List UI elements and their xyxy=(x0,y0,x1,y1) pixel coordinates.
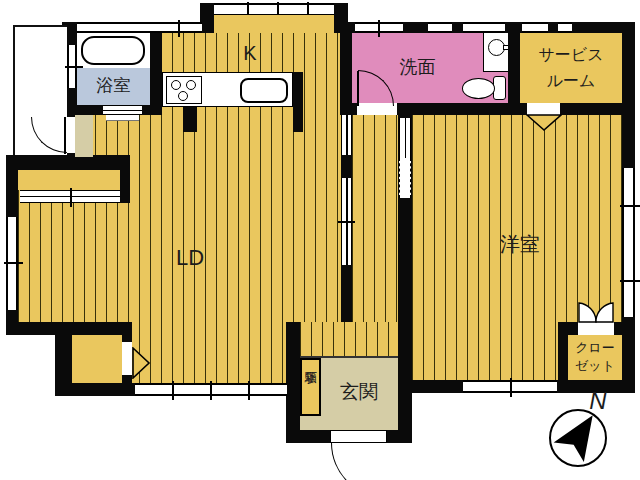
ld-bottom-window xyxy=(135,383,287,396)
washroom-window-2 xyxy=(428,22,452,33)
window-tick xyxy=(4,262,23,264)
wall-counter-stub xyxy=(183,107,197,132)
western-room-door xyxy=(399,118,411,158)
closet-folding-door xyxy=(578,299,614,323)
stove-burner xyxy=(178,91,188,101)
window-tick xyxy=(172,381,174,400)
wall-bumpout-post-left xyxy=(200,3,214,33)
kitchen-label: K xyxy=(230,42,270,64)
bathroom-side-window xyxy=(67,45,77,88)
window-tick xyxy=(70,188,72,207)
entrance-hall-floor xyxy=(300,322,398,358)
washroom-door-leaf xyxy=(357,71,359,106)
door-leaf-line xyxy=(405,118,407,158)
storage-door-opening xyxy=(122,342,132,375)
service-room-window-1 xyxy=(522,22,548,33)
wall-washroom-service xyxy=(508,22,520,115)
wall-entrance-left xyxy=(286,322,300,443)
window-tick xyxy=(248,381,250,400)
western-room-bottom-window xyxy=(463,380,557,393)
utility-door-leaf xyxy=(64,117,66,154)
toilet-window xyxy=(463,22,505,33)
closet-label-line1: クロー xyxy=(568,341,622,355)
wall-kitchen-washroom xyxy=(340,22,352,115)
living-dining-label: LD xyxy=(150,246,230,270)
wall-kitchen-right xyxy=(293,72,303,132)
western-room-label: 洋室 xyxy=(480,233,560,255)
ld-left-window xyxy=(6,217,18,310)
floor-plan: 下駄箱 浴室 K 洗面 サービス ルーム LD 洋室 クロー ゼット 玄関 xyxy=(0,0,640,480)
exterior-notch xyxy=(0,335,55,480)
stove xyxy=(166,76,202,104)
western-room-door-pocket xyxy=(399,158,411,198)
ld-sliding-door-upper xyxy=(341,115,352,155)
closet-door-opening xyxy=(578,322,614,335)
shoe-cabinet: 下駄箱 xyxy=(300,358,321,416)
bathroom-hall-strip xyxy=(75,115,93,157)
stove-burner xyxy=(186,80,196,90)
door-leaf-line xyxy=(346,115,348,155)
service-room-label-line2: ルーム xyxy=(520,72,622,90)
window-tick xyxy=(178,20,180,37)
wall-storage-left xyxy=(55,322,72,396)
bathroom-door-track xyxy=(106,115,139,121)
service-room-floor xyxy=(520,33,622,103)
closet-label-line2: ゼット xyxy=(568,359,622,373)
bathtub xyxy=(81,36,145,65)
service-room-window-2 xyxy=(558,22,572,33)
washroom-window-1 xyxy=(355,22,403,33)
stove-burner xyxy=(171,80,181,90)
kitchen-window-sill xyxy=(214,15,334,33)
wall-bathroom-right xyxy=(150,25,162,115)
bathroom-sliding-door xyxy=(103,105,142,115)
toilet-bowl xyxy=(462,78,495,99)
compass-north-label: N xyxy=(585,388,611,414)
washroom-label: 洗面 xyxy=(380,58,455,78)
bathroom-top-window xyxy=(77,22,148,33)
bathroom-label: 浴室 xyxy=(77,77,150,96)
window-tick xyxy=(65,66,83,68)
entrance-door-arc xyxy=(331,443,386,480)
window-tick xyxy=(378,20,380,37)
wall-closet-left xyxy=(558,322,568,383)
window-tick xyxy=(620,205,640,207)
window-tick xyxy=(620,280,640,282)
door-leaf-line xyxy=(103,110,142,112)
entrance-door xyxy=(330,430,387,443)
side-closet xyxy=(18,170,120,190)
kitchen-sink xyxy=(240,78,288,103)
window-tick xyxy=(210,381,212,400)
window-tick xyxy=(510,378,512,397)
storage-floor xyxy=(72,335,122,383)
side-closet-sliding-door xyxy=(20,190,120,203)
service-room-label-line1: サービス xyxy=(520,46,622,64)
western-room-right-window xyxy=(622,168,635,317)
entrance-label: 玄関 xyxy=(322,382,396,403)
window-tick xyxy=(338,221,355,223)
storage-door-swing-marker xyxy=(132,347,151,379)
wall-side-closet-right xyxy=(120,155,130,203)
service-door-swing-marker xyxy=(526,114,562,132)
kitchen-left-window xyxy=(148,22,202,33)
